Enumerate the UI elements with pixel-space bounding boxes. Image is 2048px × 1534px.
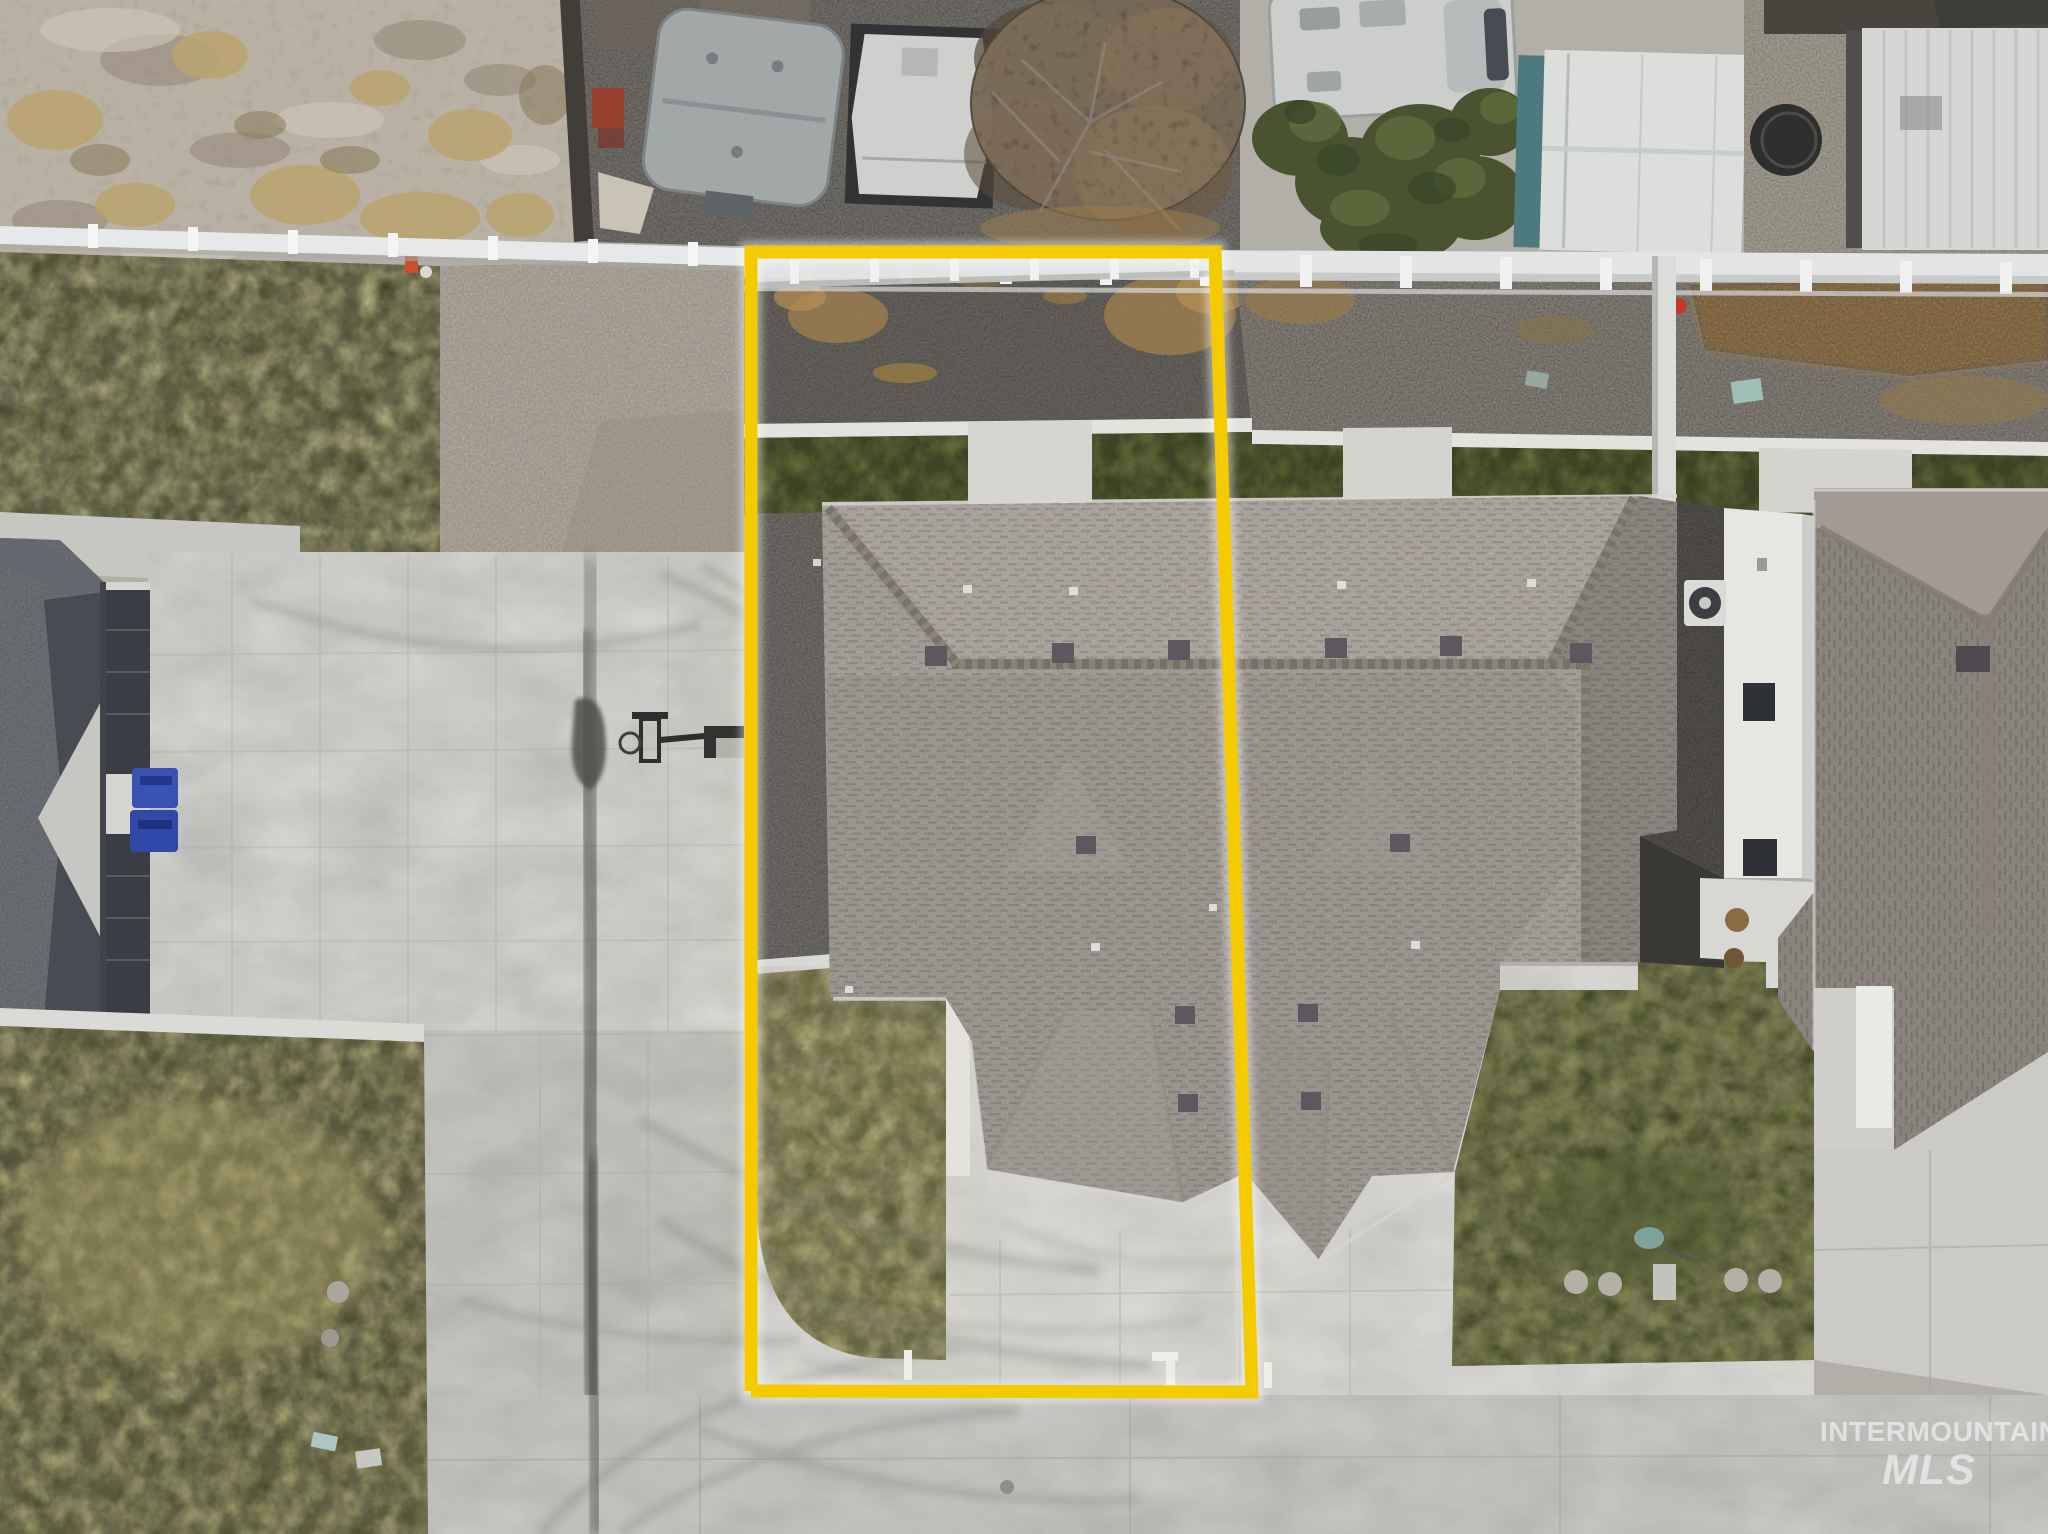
svg-text:INTERMOUNTAIN: INTERMOUNTAIN — [1820, 1416, 2048, 1447]
svg-text:MLS: MLS — [1882, 1446, 1976, 1494]
